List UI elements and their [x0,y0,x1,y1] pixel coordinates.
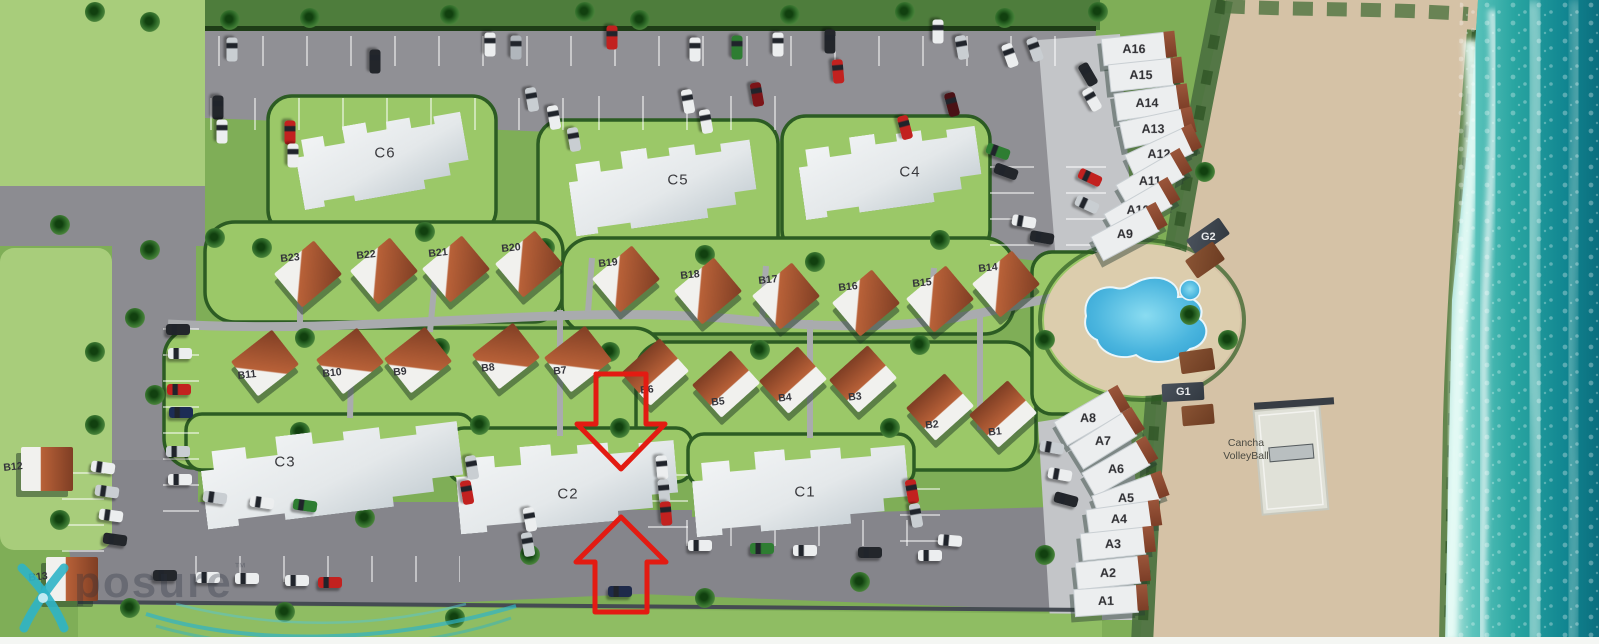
parked-car [607,26,618,50]
ocean-texture [1448,0,1599,644]
unit-label-A3: A3 [1082,531,1144,557]
building-label-C4: C4 [899,164,920,181]
house-label-B11: B11 [237,368,257,382]
palm-tree [1218,330,1238,350]
parked-car [168,348,192,359]
parked-car [168,474,192,485]
parked-car [793,545,817,556]
house-label-B10: B10 [322,366,342,380]
garage-G1: G1 [1162,382,1205,402]
palm-tree [910,335,930,355]
parked-car [690,38,701,62]
palm-tree [780,5,800,25]
field-mid-left [0,248,112,550]
parked-car [166,446,190,457]
palm-tree [85,415,105,435]
palm-tree [895,2,915,22]
parked-car [659,501,672,526]
house-label-B21: B21 [428,246,448,260]
palm-tree [205,228,225,248]
building-label-C5: C5 [667,172,688,189]
unit-A1: A1 [1073,585,1139,617]
unit-label-A16: A16 [1103,36,1165,62]
palm-tree [930,230,950,250]
beach-cabana [1179,348,1216,375]
house-label-B4: B4 [778,391,793,404]
palm-tree [145,385,165,405]
house-label-B6: B6 [640,383,655,396]
palm-tree [750,340,770,360]
parked-car [485,33,496,57]
palm-tree [440,5,460,25]
parked-car [213,96,224,120]
palm-tree [220,10,240,30]
parked-car [167,384,191,395]
palm-tree [995,8,1015,28]
unit-label-A2: A2 [1077,560,1139,586]
house-label-B18: B18 [680,268,700,282]
house-label-B9: B9 [393,365,408,378]
house-label-B1: B1 [988,425,1003,438]
parked-car [773,33,784,57]
building-label-C2: C2 [557,486,578,503]
image-border-bottom [0,637,1599,644]
unit-label-A15: A15 [1110,62,1172,88]
watermark-x-icon [16,554,70,634]
building-label-C1: C1 [794,484,815,501]
palm-tree [1180,305,1200,325]
parked-car [688,540,712,551]
resort-site-plan: Cancha VolleyBall posure ™ C6C5C4C3C2C1B… [0,0,1599,644]
palm-tree [850,572,870,592]
palm-tree [630,10,650,30]
spa-pool [1180,280,1200,300]
palm-tree [575,2,595,22]
house-label-B14: B14 [978,261,998,275]
volleyball-label-line1: Cancha [1223,437,1269,450]
parked-car [750,543,774,554]
palm-tree [85,2,105,22]
parked-car [655,455,668,480]
field-top-left [0,0,205,188]
palm-tree [300,8,320,28]
parked-car [511,36,522,60]
palm-tree [295,328,315,348]
parked-car [217,120,228,144]
unit-label-A1: A1 [1075,588,1137,614]
parked-car [831,59,844,84]
house-label-B12: B12 [3,460,23,474]
palm-tree [140,12,160,32]
house-label-B20: B20 [501,241,521,255]
house-label-B17: B17 [758,273,778,287]
volleyball-label-line2: VolleyBall [1223,450,1269,463]
palm-tree [252,238,272,258]
parked-car [918,550,942,561]
house-label-B3: B3 [848,390,863,403]
palm-tree [415,222,435,242]
parked-car [608,586,632,597]
watermark-logo: posure ™ [16,552,556,642]
parked-car [169,407,193,418]
watermark-swoosh [116,586,536,642]
garage-label-G1: G1 [1176,386,1191,398]
parked-car [370,50,381,74]
building-label-C3: C3 [274,454,295,471]
palm-tree [805,252,825,272]
house-label-B23: B23 [280,251,300,265]
house-label-B15: B15 [912,276,932,290]
hedge-line [205,26,1096,31]
parked-car [288,144,299,168]
palm-tree [1088,2,1108,22]
house-label-B7: B7 [553,364,568,377]
unit-label-A9: A9 [1094,221,1156,247]
palm-tree [610,418,630,438]
volleyball-court-label: Cancha VolleyBall [1223,437,1269,463]
parked-car [933,20,944,44]
palm-tree [1195,162,1215,182]
house-label-B22: B22 [356,248,376,262]
palm-tree [50,510,70,530]
beach-cabana [1181,404,1215,427]
palm-tree [695,588,715,608]
parked-car [285,121,296,145]
palm-tree [880,418,900,438]
parked-car [858,547,882,558]
house-label-B16: B16 [838,280,858,294]
palm-tree [1035,545,1055,565]
palm-tree [140,240,160,260]
parked-car [657,479,670,504]
house-label-B8: B8 [481,361,496,374]
parked-car [825,30,836,54]
parked-car [938,534,963,547]
palm-tree [50,215,70,235]
parked-car [227,38,238,62]
palm-tree [1035,330,1055,350]
building-label-C6: C6 [374,145,395,162]
palm-tree [470,415,490,435]
house-B12 [21,447,73,491]
parked-car [732,36,743,60]
palm-tree [125,308,145,328]
house-label-B2: B2 [925,418,940,431]
hedge-band-top [205,0,1100,30]
watermark-tm: ™ [234,560,246,574]
house-label-B19: B19 [598,256,618,270]
palm-tree [85,342,105,362]
parked-car [166,324,190,335]
house-label-B5: B5 [711,395,726,408]
